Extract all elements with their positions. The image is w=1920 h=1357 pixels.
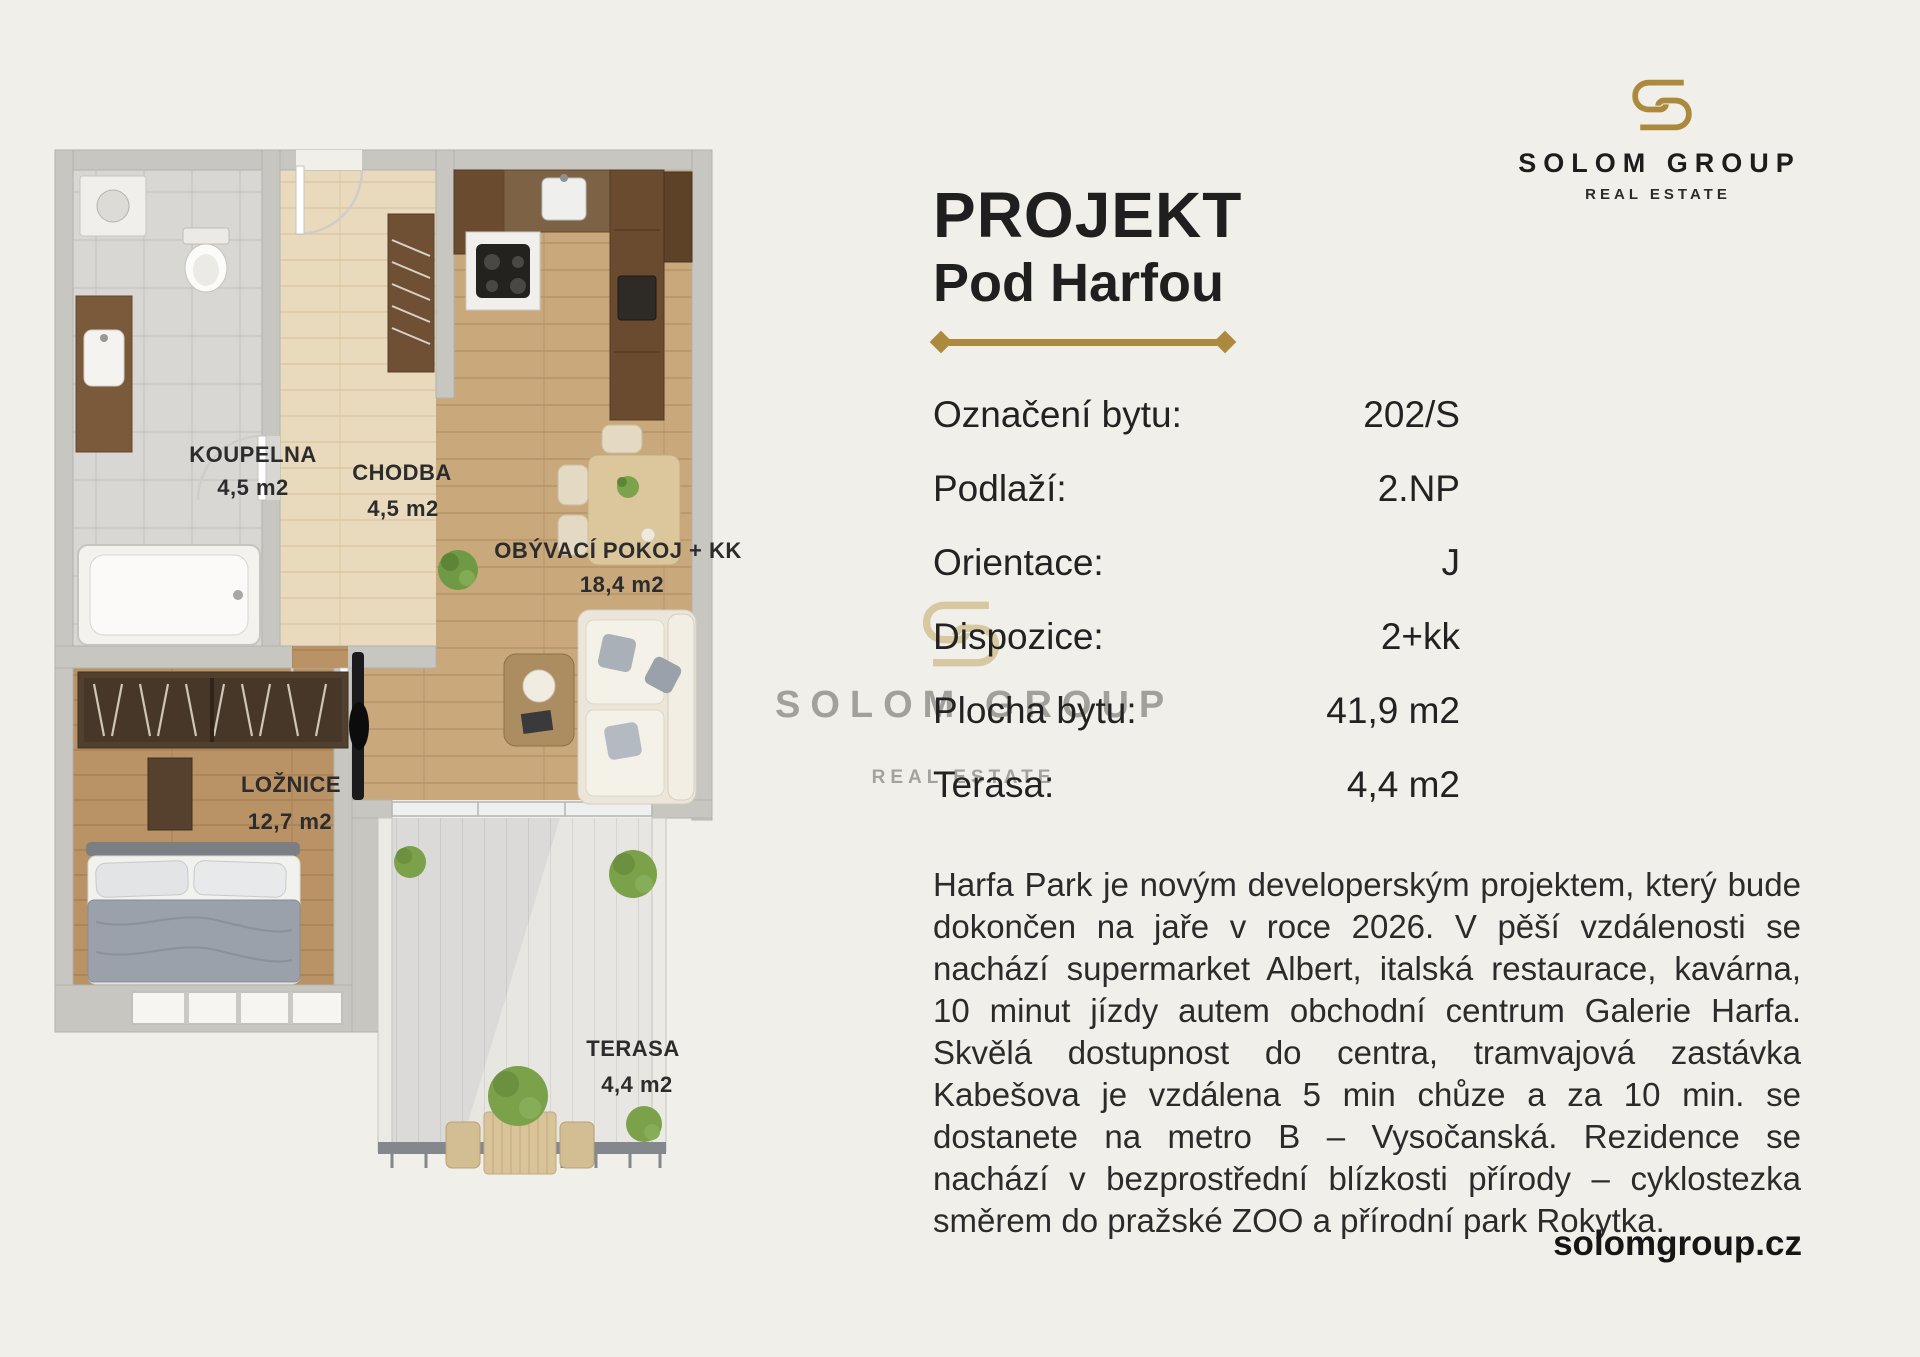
spec-label: Plocha bytu: [933, 690, 1137, 732]
solom-group-logo-icon [1630, 74, 1694, 136]
room-label-obyvaci-pokoj: OBÝVACÍ POKOJ + KK [494, 538, 742, 564]
project-description: Harfa Park je novým developerským projek… [933, 864, 1801, 1242]
solom-group-logo-tagline: REAL ESTATE [1500, 186, 1812, 203]
room-area-obyvaci-pokoj: 18,4 m2 [580, 572, 664, 598]
spec-value: 2.NP [1378, 468, 1460, 510]
hallway-wardrobe [388, 214, 434, 372]
website-link[interactable]: solomgroup.cz [1400, 1224, 1802, 1264]
room-label-terasa: TERASA [586, 1036, 679, 1062]
spec-value: 2+kk [1381, 616, 1460, 658]
spec-row-orientace: Orientace: J [933, 526, 1460, 600]
spec-row-terasa: Terasa: 4,4 m2 [933, 748, 1460, 822]
spec-value: 41,9 m2 [1326, 690, 1460, 732]
spec-label: Terasa: [933, 764, 1054, 806]
divider-line [949, 339, 1217, 346]
spec-label: Označení bytu: [933, 394, 1182, 436]
room-label-chodba: CHODBA [352, 460, 452, 486]
spec-label: Podlaží: [933, 468, 1067, 510]
spec-row-podlazi: Podlaží: 2.NP [933, 452, 1460, 526]
apartment-spec-table: Označení bytu: 202/S Podlaží: 2.NP Orien… [933, 378, 1460, 822]
spec-value: 202/S [1363, 394, 1460, 436]
spec-row-oznaceni: Označení bytu: 202/S [933, 378, 1460, 452]
room-area-koupelna: 4,5 m2 [217, 475, 289, 501]
gold-divider [933, 333, 1233, 351]
spec-value: J [1442, 542, 1461, 584]
spec-label: Orientace: [933, 542, 1104, 584]
room-label-loznice: LOŽNICE [241, 772, 341, 798]
flyer-canvas: KOUPELNA 4,5 m2 CHODBA 4,5 m2 OBÝVACÍ PO… [0, 0, 1920, 1357]
project-title-line2: Pod Harfou [933, 252, 1224, 314]
spec-row-plocha: Plocha bytu: 41,9 m2 [933, 674, 1460, 748]
room-area-terasa: 4,4 m2 [601, 1072, 673, 1098]
room-label-koupelna: KOUPELNA [189, 442, 316, 468]
spec-row-dispozice: Dispozice: 2+kk [933, 600, 1460, 674]
divider-diamond-right [1214, 331, 1237, 354]
spec-label: Dispozice: [933, 616, 1104, 658]
project-title-line1: PROJEKT [933, 178, 1242, 252]
spec-value: 4,4 m2 [1347, 764, 1460, 806]
solom-group-logo-name: SOLOM GROUP [1500, 148, 1812, 179]
divider-diamond-left [930, 331, 953, 354]
room-area-chodba: 4,5 m2 [367, 496, 439, 522]
room-area-loznice: 12,7 m2 [248, 809, 332, 835]
